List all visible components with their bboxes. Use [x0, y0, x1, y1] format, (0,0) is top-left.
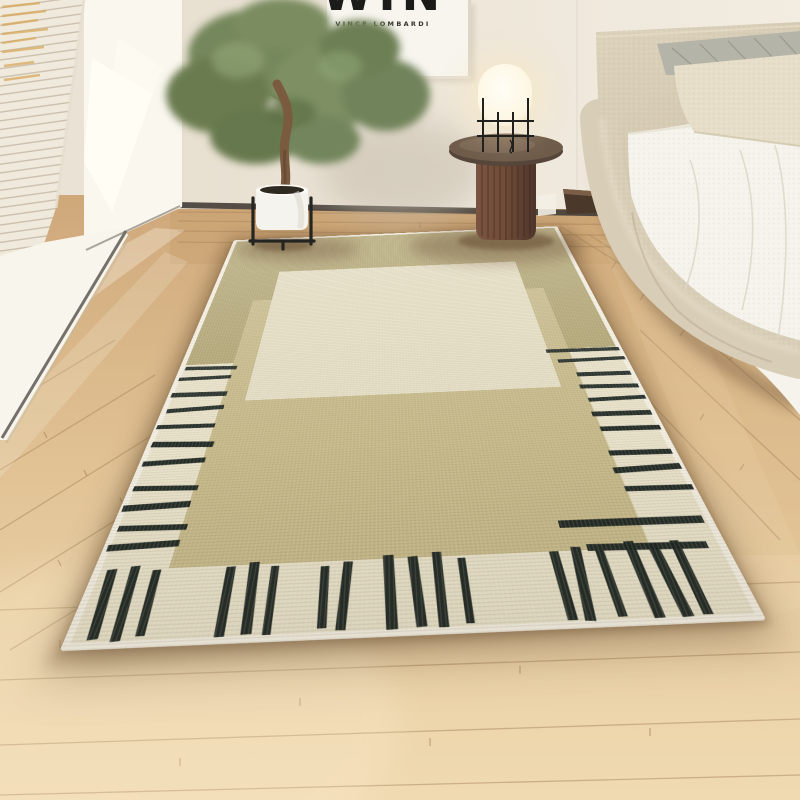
side-table	[449, 53, 563, 240]
lamp-shade	[478, 64, 532, 126]
bed	[596, 22, 800, 415]
plant-foliage	[166, 0, 430, 164]
potted-plant	[166, 0, 430, 249]
living-room-scene: WIN VINCE LOMBARDI	[0, 0, 800, 800]
foreground	[0, 0, 800, 800]
